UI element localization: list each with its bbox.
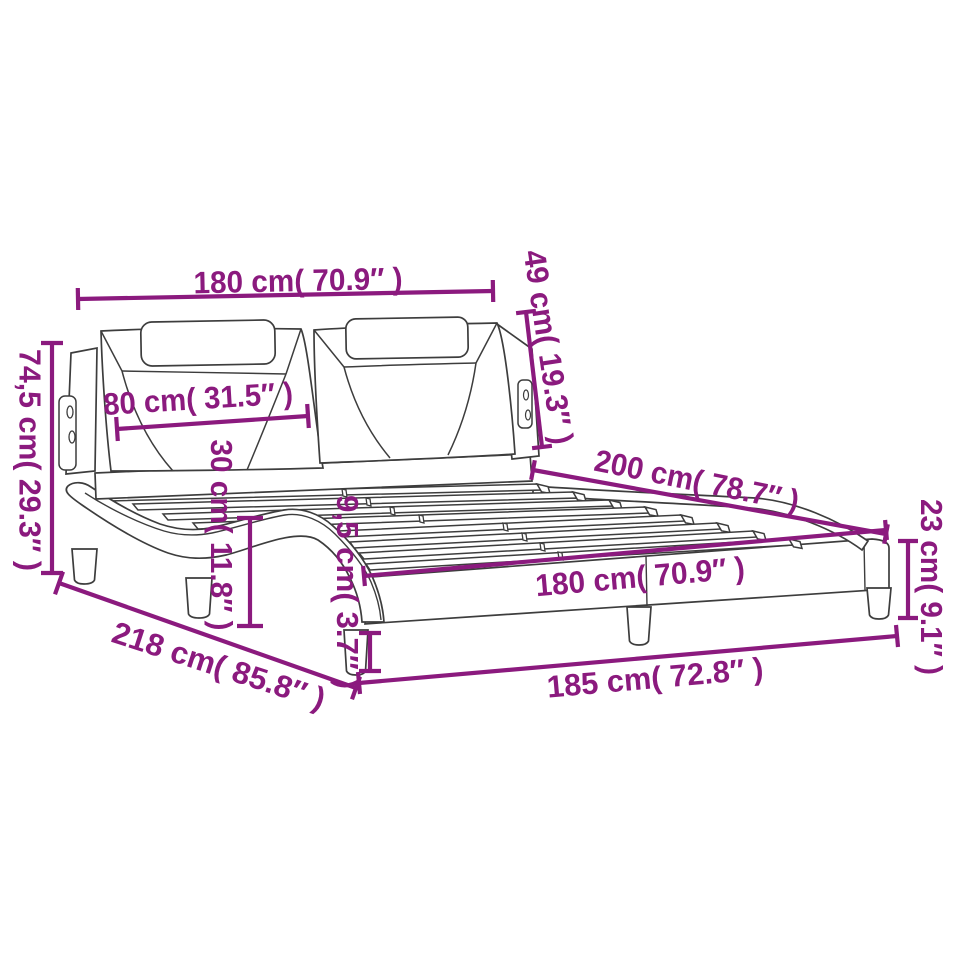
svg-text:23 cm( 9.1″ ): 23 cm( 9.1″ ) — [914, 499, 949, 675]
svg-text:180 cm( 70.9″ ): 180 cm( 70.9″ ) — [193, 261, 403, 300]
svg-text:9,5 cm( 3.7″ ): 9,5 cm( 3.7″ ) — [330, 495, 365, 689]
svg-text:74,5 cm( 29.3″ ): 74,5 cm( 29.3″ ) — [12, 349, 47, 571]
svg-text:30 cm( 11.8″ ): 30 cm( 11.8″ ) — [204, 440, 239, 631]
